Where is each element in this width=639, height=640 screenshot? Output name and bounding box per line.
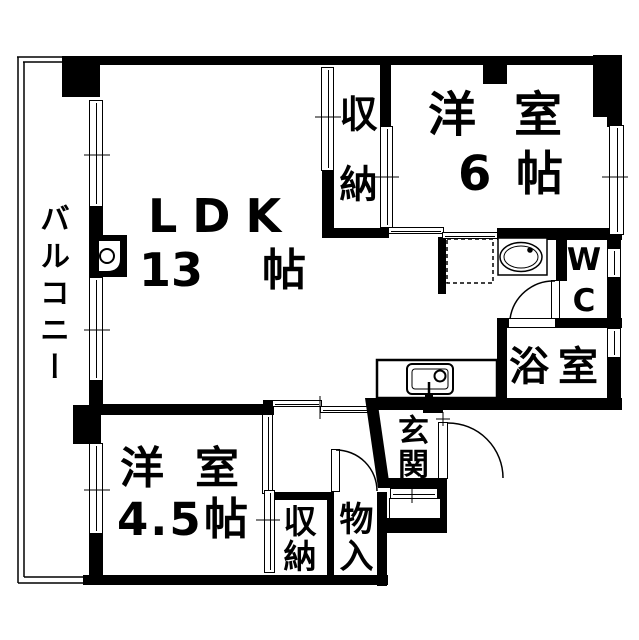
room-label-bath: 浴室 bbox=[509, 347, 607, 387]
window bbox=[89, 443, 103, 534]
window bbox=[89, 277, 103, 381]
utility-box-inner bbox=[99, 241, 120, 271]
room-size-ldk-unit: 帖 bbox=[262, 249, 306, 293]
room-label-ldk: LDK bbox=[148, 193, 296, 239]
wall bbox=[83, 575, 388, 585]
kitchen-sink-inner bbox=[412, 369, 448, 389]
washbasin-bowl bbox=[500, 243, 542, 272]
bath-door-arc bbox=[510, 281, 555, 319]
room-label-storage: 物入 bbox=[336, 501, 370, 575]
kitchen-counter bbox=[377, 360, 497, 398]
bath-door-threshold bbox=[508, 318, 556, 328]
room-label-entrance: 玄関 bbox=[394, 414, 425, 482]
washing-machine-space bbox=[447, 239, 493, 283]
room-size-western45-unit: 帖 bbox=[204, 498, 248, 542]
utility-box-circle bbox=[100, 249, 114, 263]
wall bbox=[62, 56, 100, 97]
window bbox=[607, 248, 621, 278]
washbasin-faucet bbox=[527, 247, 533, 253]
room-size-western6-value: 6 bbox=[458, 150, 491, 198]
window bbox=[89, 100, 103, 207]
room-label-western6: 洋室 bbox=[428, 91, 600, 139]
wall bbox=[438, 237, 446, 294]
floor-plan: バルコニー LDK 13 帖 収納 洋室 6 帖 WC 浴室 玄関 洋室 4.5… bbox=[0, 0, 639, 640]
wall bbox=[383, 518, 447, 533]
washbasin-bowl-inner bbox=[504, 246, 538, 268]
wall bbox=[483, 56, 507, 84]
sliding-door bbox=[442, 232, 498, 239]
wall bbox=[275, 492, 333, 500]
room-size-ldk-value: 13 bbox=[139, 247, 203, 293]
wall bbox=[380, 64, 391, 128]
faucet-icon bbox=[435, 371, 446, 382]
wall bbox=[62, 56, 622, 65]
wall bbox=[100, 404, 273, 415]
room-label-wc: WC bbox=[568, 242, 599, 324]
room-label-balcony: バルコニー bbox=[36, 203, 66, 388]
sliding-door bbox=[388, 227, 444, 234]
closet-door-arc bbox=[336, 450, 377, 491]
wall bbox=[373, 398, 622, 410]
sliding-door bbox=[264, 490, 275, 573]
bath-door-leaf bbox=[551, 280, 560, 319]
sliding-door bbox=[320, 406, 371, 413]
storage-door-leaf bbox=[331, 449, 340, 492]
wall bbox=[377, 492, 387, 586]
wall bbox=[423, 395, 443, 413]
kitchen-sink-icon bbox=[407, 364, 453, 394]
entrance-door-leaf bbox=[438, 422, 448, 479]
sliding-door bbox=[272, 400, 322, 407]
wall bbox=[89, 206, 103, 238]
wall bbox=[73, 405, 101, 444]
room-size-western6-unit: 帖 bbox=[516, 151, 563, 198]
window bbox=[609, 125, 624, 235]
sliding-door bbox=[380, 126, 393, 228]
utility-box-icon bbox=[93, 235, 127, 277]
wall bbox=[89, 380, 103, 407]
room-label-closet-top: 収納 bbox=[336, 94, 374, 234]
entrance-door-arc bbox=[448, 423, 503, 478]
wall bbox=[89, 533, 103, 577]
room-label-closet-bottom: 収納 bbox=[281, 504, 314, 574]
room-label-western45: 洋室 bbox=[120, 447, 270, 491]
wall bbox=[497, 318, 507, 410]
window bbox=[607, 328, 621, 358]
washbasin-icon bbox=[498, 238, 547, 275]
entrance-step-box bbox=[389, 498, 441, 519]
wall bbox=[89, 236, 97, 278]
room-size-western45-value: 4.5 bbox=[117, 497, 203, 542]
